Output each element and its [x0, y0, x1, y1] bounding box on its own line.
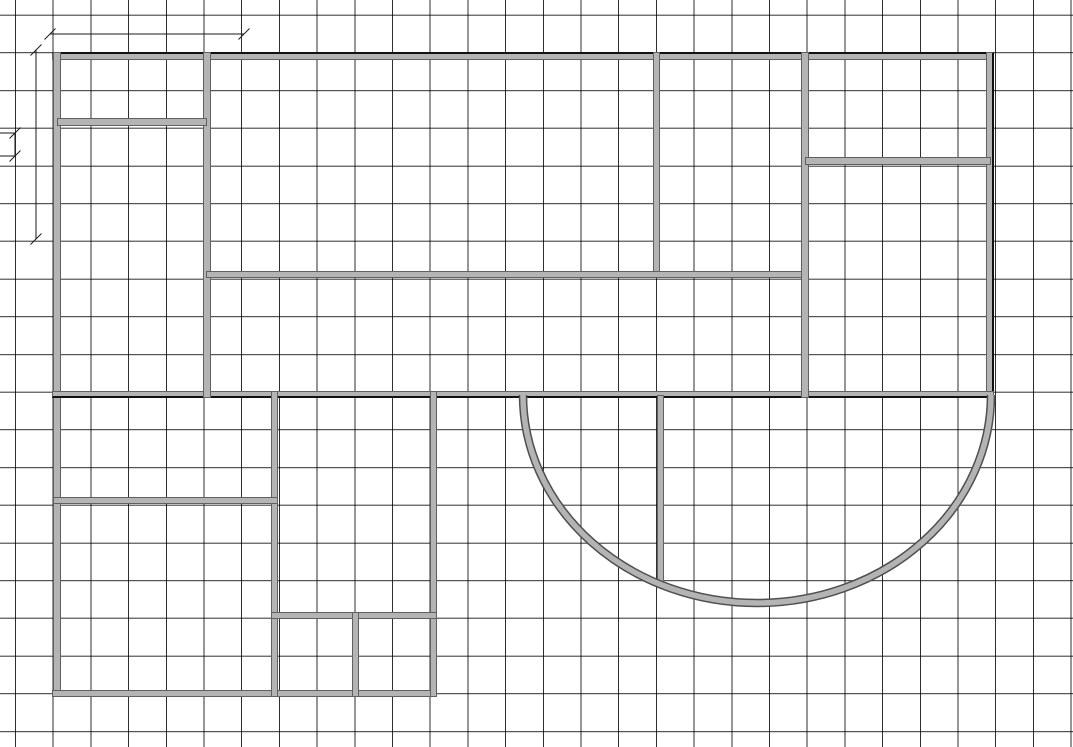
wall-outer-top[interactable]	[52, 52, 994, 60]
wall-lower-h-left[interactable]	[53, 497, 278, 504]
wall-top-v-right[interactable]	[801, 52, 809, 398]
wall-outer-left[interactable]	[53, 52, 61, 697]
wall-lower-bottom[interactable]	[52, 690, 437, 697]
wall-semi-v[interactable]	[657, 395, 664, 583]
wall-right-room-divider[interactable]	[805, 157, 991, 165]
wall-lower-right[interactable]	[430, 391, 437, 697]
wall-room-a-divider[interactable]	[57, 118, 207, 126]
wall-lower-v-small[interactable]	[352, 612, 359, 697]
wall-outer-right[interactable]	[986, 52, 994, 398]
walls-layer	[0, 0, 1073, 747]
wall-lower-v-middle[interactable]	[271, 391, 278, 697]
wall-top-h-middle[interactable]	[206, 271, 807, 278]
wall-mid-chord[interactable]	[52, 391, 994, 398]
drawing-canvas[interactable]	[0, 0, 1073, 747]
wall-top-v-left[interactable]	[203, 52, 211, 398]
wall-top-v-middle[interactable]	[653, 52, 660, 278]
